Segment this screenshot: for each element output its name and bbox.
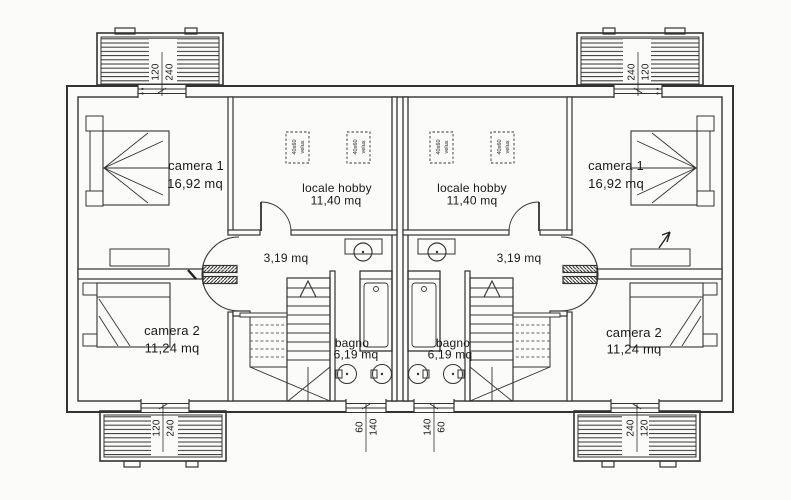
floorplan-drawing: camera 1 16,92 mq locale hobby 11,40 mq … — [0, 0, 791, 500]
room-label-hobby-right-area: 11,40 mq — [447, 194, 498, 208]
washbasins — [336, 365, 392, 384]
door-jamb-hatch-lower — [203, 277, 237, 284]
dim-balcony-bottom-left-2: 240 — [166, 419, 177, 437]
staircase — [240, 278, 330, 401]
velux-brand-label: velux — [300, 140, 306, 153]
bagno-window — [346, 399, 386, 452]
velux-brand-label: velux — [361, 140, 367, 153]
dim-balcony-bottom-left-1: 120 — [152, 419, 163, 437]
room-label-bagno-left-area: 6,19 mq — [334, 348, 379, 362]
dim-balcony-top-right-2: 120 — [641, 63, 652, 81]
toilet — [345, 239, 382, 261]
room-label-corridor-right-area: 3,19 mq — [497, 251, 542, 265]
room-label-camera1-left-name: camera 1 — [168, 158, 224, 173]
dim-balcony-top-left-1: 120 — [151, 63, 162, 81]
dresser-camera1 — [110, 249, 169, 266]
dim-balcony-top-right-1: 240 — [627, 63, 638, 81]
dim-window-right-1: 140 — [423, 418, 434, 436]
room-label-bagno-right-area: 6,19 mq — [428, 348, 473, 362]
bed-camera1 — [86, 116, 169, 206]
velux-size-label: 40x60 — [353, 139, 359, 154]
velux-size-label: 40x60 — [292, 139, 298, 154]
room-label-hobby-left-area: 11,40 mq — [311, 194, 362, 208]
dim-window-right-2: 60 — [437, 421, 448, 433]
room-label-corridor-left-area: 3,19 mq — [264, 251, 309, 265]
dim-balcony-top-left-2: 240 — [165, 63, 176, 81]
velux-size-label: 40x60 — [497, 139, 503, 154]
room-label-camera1-left-area: 16,92 mq — [167, 176, 223, 191]
dim-balcony-bottom-right-1: 240 — [626, 419, 637, 437]
velux-brand-label: velux — [444, 140, 450, 153]
room-label-camera1-right-area: 16,92 mq — [588, 176, 644, 191]
room-label-camera1-right-name: camera 1 — [588, 158, 644, 173]
party-wall — [392, 97, 408, 401]
dim-window-left-2: 140 — [369, 418, 380, 436]
door-jamb-hatch-upper — [203, 266, 237, 273]
dim-window-left-1: 60 — [355, 421, 366, 433]
room-label-camera2-right-name: camera 2 — [606, 325, 662, 340]
velux-brand-label: velux — [505, 140, 511, 153]
velux-size-label: 40x60 — [436, 139, 442, 154]
room-label-camera2-left-area: 11,24 mq — [145, 341, 200, 356]
floorplan-scan: camera 1 16,92 mq locale hobby 11,40 mq … — [0, 0, 791, 500]
room-label-camera2-left-name: camera 2 — [144, 323, 200, 338]
room-label-camera2-right-area: 11,24 mq — [607, 342, 662, 357]
dim-balcony-bottom-right-2: 120 — [640, 419, 651, 437]
